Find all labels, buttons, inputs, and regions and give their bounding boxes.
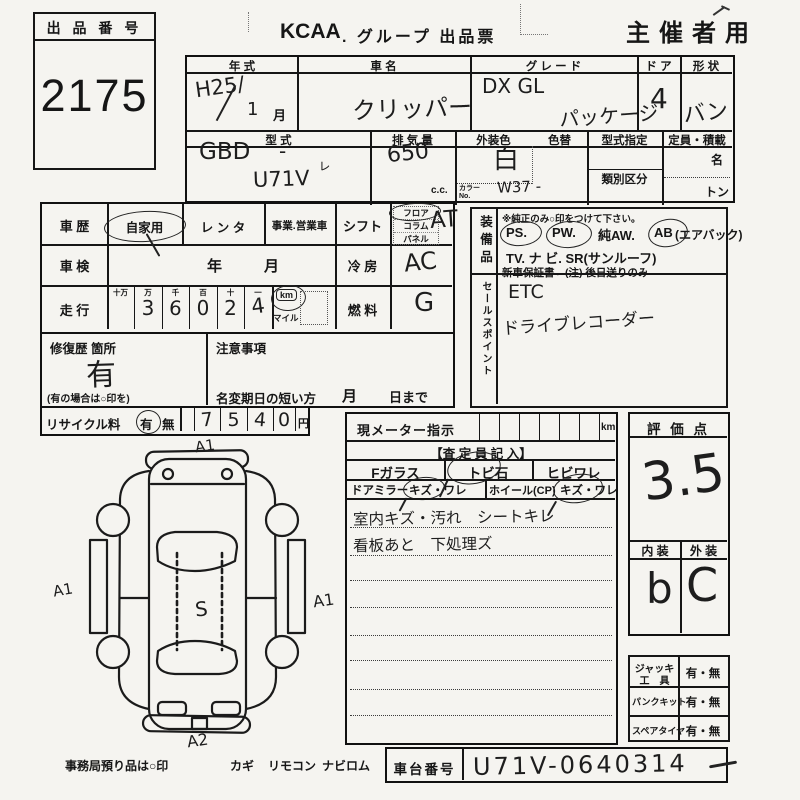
door-value: 4 [650, 82, 668, 115]
repair-row: 修復歴 箇所 有 (有の場合は○印を) 注意事項 名変期日の短い方 月 日まで [40, 332, 455, 408]
model-check: ㇾ [317, 155, 331, 175]
line [350, 580, 612, 581]
grade-header: グ レ ー ド [470, 58, 637, 74]
exterior-label: 外 装 [680, 542, 727, 559]
year-value: H25/ [194, 72, 246, 103]
hand-circle-recycle-yes [134, 408, 162, 435]
fee-digit: 4 [246, 408, 274, 432]
door-header: ド ア [637, 58, 680, 74]
rename-day: 日まで [389, 387, 428, 406]
organizer-label: 主催者用 [626, 13, 758, 48]
yen-label: 円 [298, 415, 309, 431]
chassis-number-value: U71V-0640314 [473, 749, 688, 781]
spare-tire-availability: 有・無 [678, 723, 728, 739]
dotted-box [520, 4, 548, 35]
capacity-header: 定員・積載 [662, 132, 732, 148]
history-rental: レ ン タ [182, 217, 264, 236]
sales-point-recorder: ドライブレコーダー [501, 304, 655, 340]
line [350, 689, 612, 690]
hand-circle-private [103, 209, 187, 244]
vehicle-table: 年 式 車 名 グ レ ー ド ド ア 形 状 H25/ 1 月 クリッパー D… [185, 55, 735, 203]
inspector-note-2: 看板あと 下処理ズ [353, 532, 493, 556]
inspection-label: 車 検 [42, 256, 107, 275]
name-header: 車 名 [297, 58, 470, 74]
deposit-item-navirom: ナビロム [322, 757, 370, 774]
line [496, 209, 498, 273]
mileage-digit: 6 [161, 295, 190, 321]
rename-label: 名変期日の短い方 [216, 388, 316, 407]
score-box: 評 価 点 3.5 内 装 外 装 b C [628, 412, 730, 636]
mileage-digit: 4 [242, 292, 273, 320]
dotted-box [300, 291, 328, 325]
mark-roof: S [194, 596, 209, 621]
line [496, 275, 498, 404]
car-diagram: A1 A1 A1 S A2 [45, 437, 350, 755]
line [350, 555, 612, 556]
interior-label: 内 装 [630, 542, 680, 559]
line [295, 408, 296, 431]
year-month-value: 1 [247, 99, 258, 120]
chassis-number-box: 車台番号 U71V-0640314 [385, 747, 728, 783]
rear-right-wheel [266, 636, 298, 668]
door-mirror-label: ドアミラー [351, 482, 408, 498]
caution-label: 注意事項 [216, 338, 266, 357]
line [350, 660, 612, 661]
mark-right: A1 [312, 590, 336, 612]
sales-point-label: セールスポイント [478, 281, 493, 377]
front-right-wheel [266, 504, 298, 536]
line [579, 414, 580, 440]
mile-unit: マイル [273, 312, 299, 324]
color-value: 白 [493, 139, 519, 176]
line [347, 440, 615, 442]
score-label: 評 価 点 [630, 418, 727, 438]
line [462, 749, 464, 780]
score-value: 3.5 [638, 443, 728, 514]
chassis-number-label: 車台番号 [387, 758, 462, 778]
line [499, 414, 500, 440]
equipment-label: 装備品 [476, 215, 495, 268]
line [350, 527, 612, 528]
shape-value: バン [681, 93, 729, 130]
meter-label: 現メーター指示 [357, 420, 455, 439]
inspector-box: 現メーター指示 km 【査 定 員 記 入】 Fガラス トビ石 ヒビワレ ドアミ… [345, 412, 618, 745]
type-designation-header: 型式指定 [587, 132, 662, 148]
digit-header: 十万 [107, 287, 134, 298]
line [390, 204, 392, 329]
ac-value: AC [403, 246, 439, 277]
jack-label-2: 工 具 [632, 672, 677, 687]
fee-digit: 7 [193, 408, 221, 433]
grade-value-1: DX GL [482, 74, 544, 98]
history-label: 車 歴 [42, 216, 107, 235]
history-business: 事業.営業車 [264, 218, 335, 233]
wheel-label: ホイール(CP) [489, 482, 556, 498]
line [180, 408, 182, 431]
jack-availability: 有・無 [678, 665, 728, 681]
deposit-item-key: カギ [230, 757, 254, 774]
deposit-item-remote: リモコン [268, 757, 316, 774]
recycle-no: 無 [162, 414, 175, 433]
shape-header: 形 状 [680, 58, 732, 74]
mark-rear: A2 [186, 730, 210, 752]
puncture-kit-label: パンクキット [632, 695, 677, 708]
inspection-month: 月 [264, 255, 279, 276]
recycle-label: リサイクル料 [46, 414, 120, 433]
lot-number-box: 出 品 番 号 2175 [33, 12, 156, 170]
line [479, 414, 480, 440]
fuel-value: G [414, 288, 434, 318]
line [350, 635, 612, 636]
color-no-label: カラーNo. [459, 185, 480, 201]
line [587, 169, 662, 170]
recolor-header: 色替 [532, 132, 587, 148]
interior-value: b [646, 564, 673, 613]
line [42, 244, 452, 246]
pen-stroke [709, 761, 737, 768]
shift-label: シフト [335, 216, 390, 235]
repair-note: (有の場合は○印を) [47, 390, 130, 405]
model-value-2: U71V [253, 166, 310, 192]
exterior-value: C [686, 558, 718, 612]
sales-point-etc: ETC [508, 281, 544, 303]
lot-number-value: 2175 [35, 70, 154, 122]
inspector-note-1: 室内キズ・汚れ シートキレ [353, 504, 555, 530]
mark-left: A1 [52, 579, 75, 600]
dotted-mark [248, 12, 249, 32]
left-sill [90, 540, 107, 633]
line [35, 39, 154, 41]
spare-tire-label: スペアタイヤ [632, 724, 677, 737]
deposit-items-label: 事務局預り品は○印 [65, 757, 168, 774]
shift-option-panel: パネル [394, 233, 438, 245]
meter-km-unit: km [601, 422, 615, 433]
rear-left-wheel [97, 636, 129, 668]
fee-digit: 5 [220, 409, 247, 431]
displacement-value: 650 [386, 139, 430, 168]
grade-value-2: パッケージ [558, 97, 659, 133]
line [630, 436, 727, 438]
mileage-digit: 3 [134, 296, 162, 320]
equipment-box: 装備品 ※純正のみ○印をつけて下さい。 PS. PW. 純AW. AB (エアバ… [470, 207, 728, 275]
pen-mark [721, 5, 730, 11]
class-header: 類別区分 [587, 171, 662, 187]
model-dash: - [279, 139, 286, 163]
line [206, 334, 208, 405]
line [347, 498, 615, 500]
hand-circle-ab [646, 216, 690, 251]
mileage-digit: 0 [189, 296, 217, 320]
line [350, 715, 612, 716]
shift-value: AT [429, 206, 459, 234]
header-title: . グループ 出品票 [342, 23, 496, 47]
car-name-value: クリッパー [351, 87, 472, 126]
car-outline-drawing [45, 437, 350, 755]
inspection-year: 年 [207, 255, 222, 276]
repair-value: 有 [85, 349, 117, 394]
mileage-digit: 2 [217, 296, 244, 320]
mark-front: A1 [194, 436, 216, 457]
usage-table: 車 歴 自家用 レ ン タ 事業.営業車 車 検 年 月 走 行 十万 万 千 … [40, 202, 455, 332]
fee-digit: 0 [273, 409, 295, 431]
car-body [149, 459, 246, 729]
line [664, 177, 730, 178]
rename-month: 月 [342, 385, 357, 406]
kcaa-logo: KCAA [280, 20, 341, 44]
line [350, 607, 612, 608]
capacity-unit-persons: 名 [711, 151, 723, 168]
front-left-wheel [97, 504, 129, 536]
equip-aw: 純AW. [598, 225, 635, 244]
displacement-unit: c.c. [431, 185, 448, 196]
ac-label: 冷 房 [335, 256, 390, 275]
capacity-unit-tons: トン [705, 183, 729, 200]
line [539, 414, 540, 440]
model-value-1: GBD [199, 139, 250, 165]
tools-box: ジャッキ 工 具 有・無 パンクキット 有・無 スペアタイヤ 有・無 [628, 655, 730, 742]
line [519, 414, 520, 440]
line [485, 479, 487, 498]
line [559, 414, 560, 440]
puncture-kit-availability: 有・無 [678, 694, 728, 710]
month-label: 月 [273, 105, 286, 124]
sales-point-box: セールスポイント ETC ドライブレコーダー [470, 275, 728, 408]
lot-number-label: 出 品 番 号 [35, 18, 154, 38]
fuel-label: 燃 料 [335, 300, 390, 319]
mileage-label: 走 行 [42, 300, 107, 319]
auction-sheet: 出 品 番 号 2175 KCAA . グループ 出品票 主催者用 年 式 車 … [0, 0, 800, 800]
right-sill [288, 540, 305, 633]
recycle-row: リサイクル料 有 無 7 5 4 0 円 [40, 408, 310, 436]
color-no-value: W37 - [497, 177, 542, 197]
